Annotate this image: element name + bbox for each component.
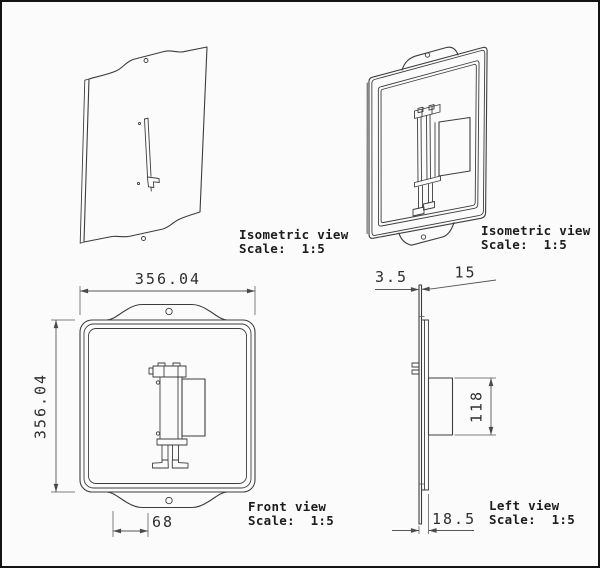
- bracket-assembly: [149, 363, 205, 468]
- bracket-box: [182, 379, 205, 436]
- frame-outline: [80, 320, 255, 492]
- dimension-plate-thickness: 3.5: [375, 268, 432, 290]
- view-title: Isometric view: [239, 228, 349, 242]
- bracket-cap: [153, 366, 186, 377]
- dimension-tab-offset: 68: [113, 511, 174, 537]
- hook-tab-lower: [412, 370, 419, 374]
- top-tab: [107, 305, 227, 321]
- bracket-assembly: [413, 105, 470, 217]
- dimension-total-depth: 18.5: [392, 494, 476, 534]
- dim-left-frame-depth: 15: [454, 264, 476, 282]
- dim-front-overall-width: 356.04: [135, 270, 201, 288]
- view-title: Front view: [248, 500, 334, 514]
- mounting-hole-top: [425, 53, 429, 57]
- rail-and-hook: [137, 118, 159, 191]
- view-title: Isometric view: [481, 224, 591, 238]
- dim-left-bracket-height: 118: [468, 390, 486, 423]
- dimension-frame-depth: 15: [432, 264, 496, 289]
- mounting-hole-bottom: [421, 235, 425, 239]
- bracket-base-bar: [157, 439, 187, 445]
- view-title: Left view: [489, 499, 575, 513]
- plate-back: [80, 47, 207, 243]
- mounting-hole-bottom: [142, 237, 146, 241]
- iso-front-view-label: Isometric view Scale: 1:5: [481, 224, 591, 252]
- view-scale: Scale: 1:5: [239, 242, 349, 256]
- bracket-leg-right: [173, 445, 179, 460]
- bracket-box-section: [429, 378, 453, 435]
- view-scale: Scale: 1:5: [481, 238, 591, 252]
- pin-hole-bottom: [137, 182, 139, 184]
- hook-tab-upper: [412, 363, 419, 367]
- bottom-tab: [107, 492, 227, 508]
- dimension-overall-height: 356.04: [32, 320, 76, 492]
- plate-section: [412, 285, 453, 524]
- front-view-label: Front view Scale: 1:5: [248, 500, 334, 528]
- technical-drawing-sheet: 356.04 356.04 68: [0, 0, 600, 568]
- dim-left-plate-thickness: 3.5: [375, 268, 408, 286]
- bracket-body: [160, 377, 182, 439]
- iso-back-view-drawing: [42, 7, 242, 257]
- iso-back-view-label: Isometric view Scale: 1:5: [239, 228, 349, 256]
- dim-front-tab-offset: 68: [152, 513, 174, 531]
- bracket-foot-left: [153, 460, 169, 468]
- pin-hole-top: [138, 122, 140, 124]
- bracket-foot-left: [413, 207, 424, 216]
- bracket-foot-right: [424, 202, 435, 211]
- mounting-hole-top: [144, 59, 148, 63]
- left-view-label: Left view Scale: 1:5: [489, 499, 575, 527]
- bracket-foot-right: [172, 460, 188, 468]
- mounting-hole-top: [166, 308, 172, 314]
- dim-left-total-depth: 18.5: [432, 510, 476, 528]
- view-scale: Scale: 1:5: [489, 513, 575, 527]
- mounting-hole-bottom: [166, 497, 172, 503]
- view-scale: Scale: 1:5: [248, 514, 334, 528]
- dimension-bracket-height: 118: [455, 378, 497, 435]
- bracket-leg-left: [162, 445, 168, 460]
- bracket-box: [439, 118, 470, 177]
- dim-front-overall-height: 356.04: [32, 373, 50, 439]
